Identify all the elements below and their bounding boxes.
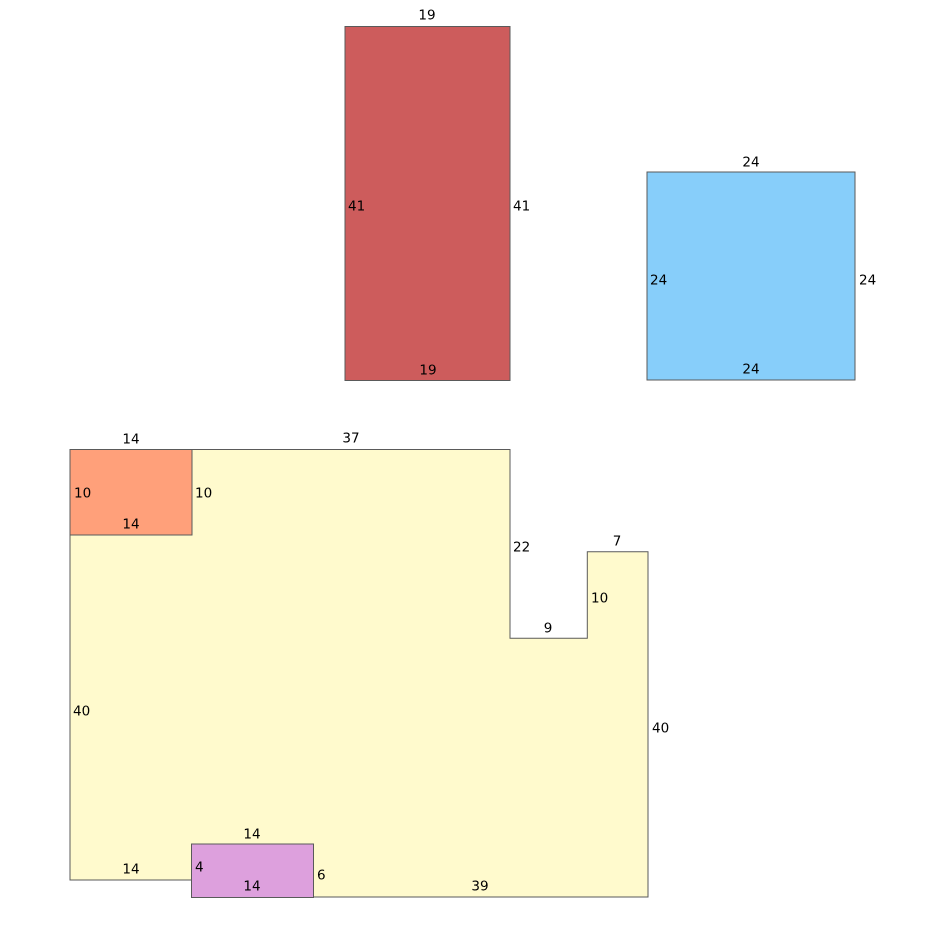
red-top-label: 19 <box>418 9 435 23</box>
purple-left-label: 4 <box>195 861 204 875</box>
yellow-top-label: 37 <box>342 432 359 446</box>
red-rectangle-shape <box>345 27 510 381</box>
orange-bottom-label: 14 <box>122 518 139 532</box>
purple-right-label: 6 <box>317 869 326 883</box>
yellow-upper-right-top-label: 7 <box>613 535 622 549</box>
orange-top-label: 14 <box>122 433 139 447</box>
yellow-right-label: 40 <box>652 722 669 736</box>
yellow-left-label: 40 <box>73 705 90 719</box>
shapes-canvas <box>0 0 925 925</box>
orange-right-label: 10 <box>195 487 212 501</box>
yellow-bottom-left-label: 14 <box>122 863 139 877</box>
red-bottom-label: 19 <box>419 364 436 378</box>
red-right-label: 41 <box>513 200 530 214</box>
blue-bottom-label: 24 <box>742 363 759 377</box>
yellow-notch-right-label: 10 <box>591 592 608 606</box>
purple-bottom-label: 14 <box>243 880 260 894</box>
yellow-notch-bottom-label: 9 <box>544 622 553 636</box>
blue-square-shape <box>647 172 855 380</box>
purple-top-label: 14 <box>243 828 260 842</box>
figure-canvas: 19 41 41 19 24 24 24 24 37 22 9 10 7 40 … <box>0 0 925 925</box>
blue-top-label: 24 <box>742 156 759 170</box>
blue-left-label: 24 <box>650 274 667 288</box>
yellow-notch-left-label: 22 <box>513 541 530 555</box>
orange-left-label: 10 <box>74 487 91 501</box>
red-left-label: 41 <box>348 200 365 214</box>
blue-right-label: 24 <box>859 274 876 288</box>
yellow-bottom-label: 39 <box>471 880 488 894</box>
